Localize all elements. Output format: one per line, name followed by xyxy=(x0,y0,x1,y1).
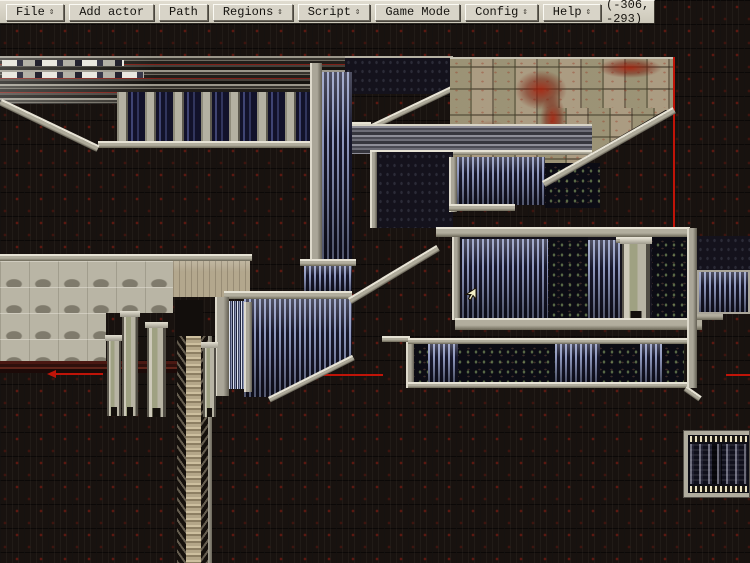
map-canvas[interactable] xyxy=(0,0,750,563)
ladder-rail xyxy=(177,336,186,563)
mid-platform-top xyxy=(224,291,352,299)
machine-room-floor xyxy=(455,318,702,330)
menu-label: Path xyxy=(169,5,198,19)
menu-button-script[interactable]: Script ⇕ xyxy=(298,4,371,21)
menu-button-add-actor[interactable]: Add actor ⇕ xyxy=(69,4,154,21)
central-shaft-wall xyxy=(310,63,322,262)
window-strip xyxy=(2,60,124,66)
menubar: File ⇕ Add actor ⇕ Path ⇕ Regions ⇕ Scri… xyxy=(0,0,655,23)
platform-left-wall xyxy=(370,152,377,228)
dark-interior-block xyxy=(345,56,453,94)
menu-button-file[interactable]: File ⇕ xyxy=(6,4,64,21)
corner-bevel xyxy=(684,386,702,401)
chamber-ledge xyxy=(449,204,515,211)
menu-label: File xyxy=(16,5,45,19)
level-editor-window: File ⇕ Add actor ⇕ Path ⇕ Regions ⇕ Scri… xyxy=(0,0,750,563)
panel-wall-right xyxy=(244,302,252,392)
machine-column-dark xyxy=(652,237,687,320)
menu-label: Script xyxy=(308,5,351,19)
menu-label: Regions xyxy=(223,5,273,19)
signal-panel xyxy=(683,430,750,498)
central-shaft-interior xyxy=(322,72,352,262)
side-panel xyxy=(697,270,750,314)
lower-room-bottom xyxy=(408,382,692,388)
cursor-coordinates-readout: (-306, -293) xyxy=(606,0,655,26)
rust-stain xyxy=(598,58,662,78)
pillar xyxy=(147,327,166,417)
scalloped-block-lower xyxy=(0,313,106,365)
lower-column-blue xyxy=(640,344,662,382)
menu-label: Config xyxy=(475,5,518,19)
right-dark-bay xyxy=(697,236,750,270)
shaft-ledge xyxy=(300,259,356,266)
region-line-vertical xyxy=(673,57,675,233)
room-pillar xyxy=(622,243,650,320)
updown-arrow-icon: ⇕ xyxy=(277,8,282,17)
machine-room-roof xyxy=(436,227,690,237)
platform-to-room-ramp xyxy=(348,245,440,304)
pillar xyxy=(122,316,138,416)
menu-button-game-mode[interactable]: Game Mode ⇕ xyxy=(375,4,460,21)
signal-dot-strip xyxy=(690,436,747,442)
machine-column-blue xyxy=(588,240,620,320)
updown-arrow-icon: ⇕ xyxy=(355,8,360,17)
machine-column-dark xyxy=(548,237,588,320)
lower-column-blue xyxy=(555,344,600,382)
ladder-rungs xyxy=(186,336,201,563)
descending-ramp xyxy=(0,99,99,152)
region-line-segment xyxy=(55,373,103,375)
chamber-interior xyxy=(457,157,545,205)
region-line-segment xyxy=(726,374,750,376)
gallery-floor-ledge xyxy=(98,141,317,148)
signal-panel-face xyxy=(688,435,749,493)
shaft-interior-lower xyxy=(304,266,352,294)
menu-label: Game Mode xyxy=(385,5,450,19)
menu-button-help[interactable]: Help ⇕ xyxy=(543,4,601,21)
lower-column-blue xyxy=(428,344,458,382)
menu-button-path[interactable]: Path ⇕ xyxy=(159,4,208,21)
menu-button-config[interactable]: Config ⇕ xyxy=(465,4,538,21)
menu-label: Help xyxy=(553,5,582,19)
pillar xyxy=(107,340,121,416)
barcode-panel xyxy=(229,301,244,389)
menu-label: Add actor xyxy=(79,5,144,19)
block-top-ledge xyxy=(0,254,252,261)
window-strip xyxy=(2,72,144,78)
updown-arrow-icon: ⇕ xyxy=(522,8,527,17)
updown-arrow-icon: ⇕ xyxy=(49,8,54,17)
right-wall xyxy=(687,228,697,388)
machine-room-left-wall xyxy=(452,237,460,320)
machine-column-blue xyxy=(462,239,548,318)
pillar xyxy=(203,347,216,417)
menu-button-regions[interactable]: Regions ⇕ xyxy=(213,4,293,21)
signal-dot-strip xyxy=(690,486,747,492)
under-platform-interior xyxy=(377,152,453,228)
scalloped-block-upper xyxy=(0,261,173,313)
signal-bars xyxy=(690,444,747,484)
updown-arrow-icon: ⇕ xyxy=(586,8,591,17)
